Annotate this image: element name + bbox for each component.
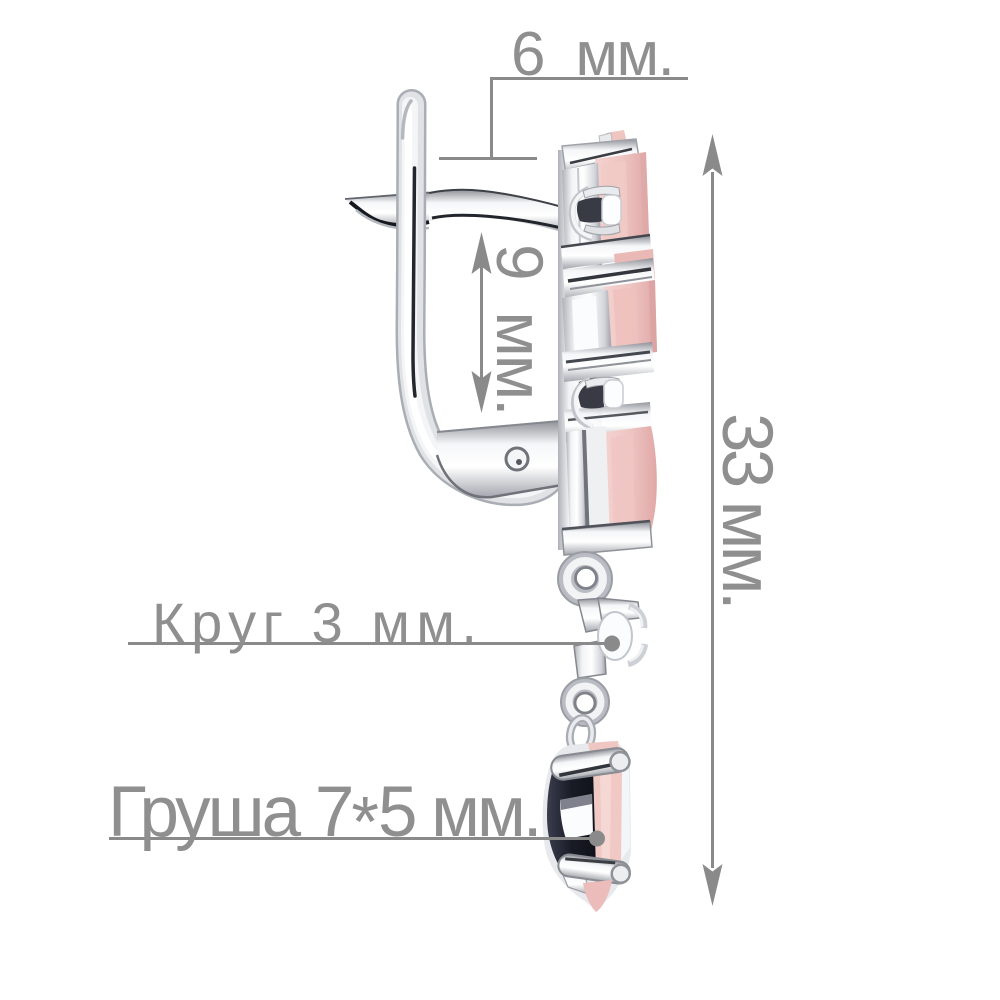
svg-text:6 мм.: 6 мм. — [511, 20, 673, 89]
svg-text:Круг 3 мм.: Круг 3 мм. — [152, 591, 483, 654]
svg-text:33 мм.: 33 мм. — [707, 413, 786, 607]
svg-text:9 мм.: 9 мм. — [483, 244, 557, 414]
svg-text:Груша 7*5 мм.: Груша 7*5 мм. — [108, 773, 540, 862]
